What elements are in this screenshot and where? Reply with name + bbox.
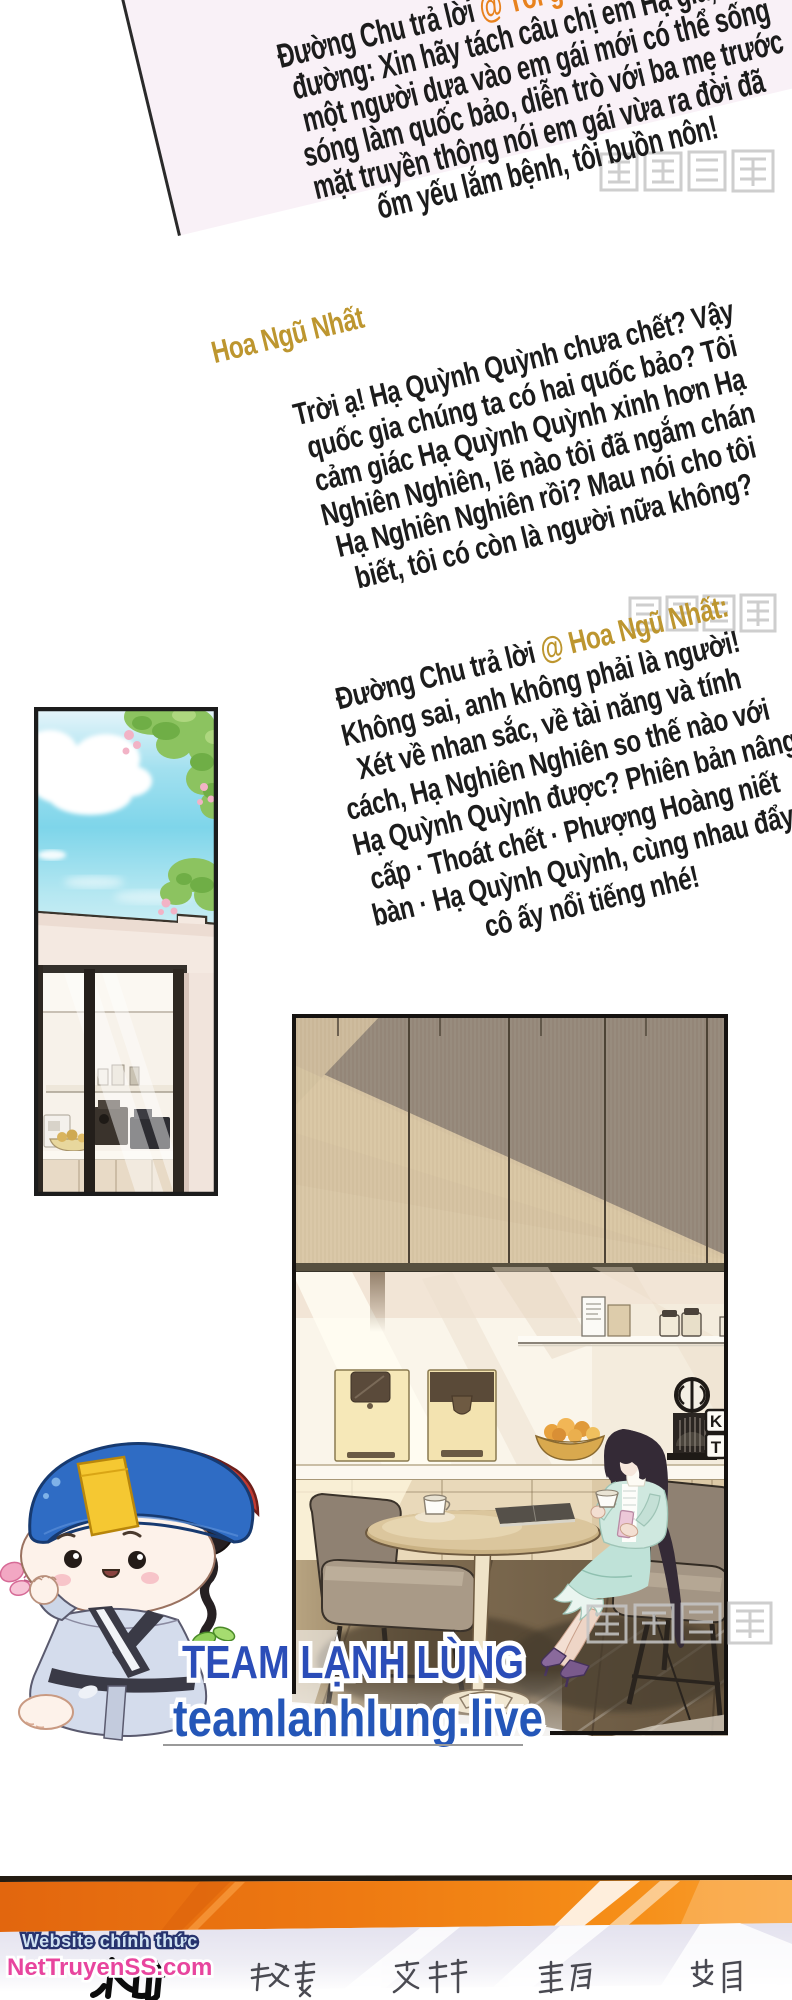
- svg-text:K: K: [710, 1412, 723, 1431]
- svg-text:teamlanhlung.live: teamlanhlung.live: [173, 1690, 543, 1748]
- svg-text:T: T: [711, 1438, 722, 1457]
- svg-text:TEAM LẠNH LÙNG: TEAM LẠNH LÙNG: [182, 1636, 524, 1688]
- svg-text:Website chính thức: Website chính thức: [22, 1931, 198, 1951]
- svg-text:NetTruyenSS.com: NetTruyenSS.com: [7, 1954, 212, 1981]
